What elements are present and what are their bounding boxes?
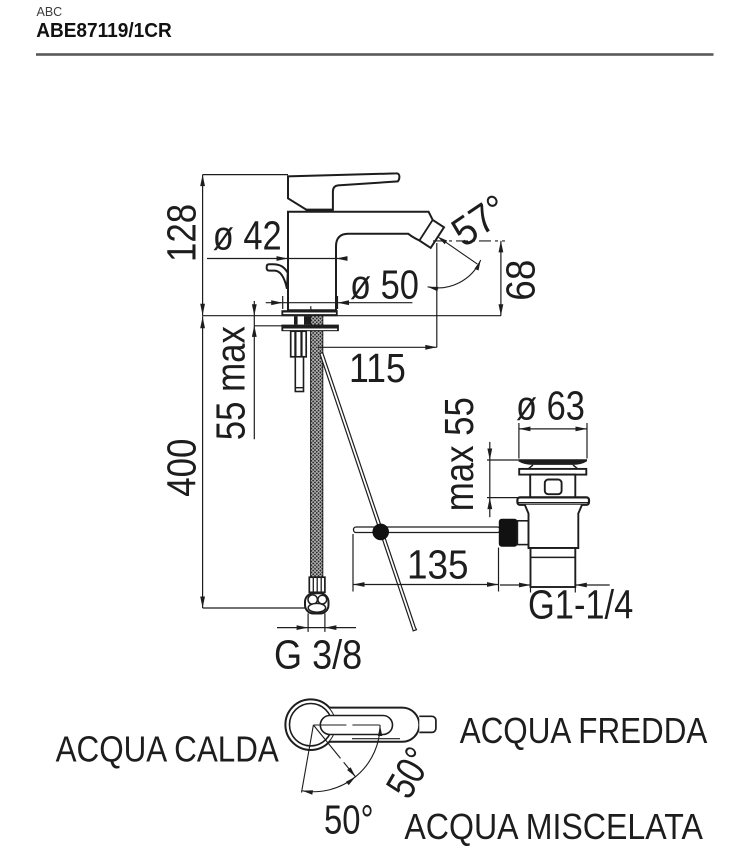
- svg-text:max 55: max 55: [438, 397, 483, 511]
- svg-text:ø 50: ø 50: [350, 263, 419, 308]
- svg-text:G 3/8: G 3/8: [274, 632, 362, 678]
- svg-text:ACQUA FREDDA: ACQUA FREDDA: [460, 711, 708, 752]
- svg-text:ACQUA MISCELATA: ACQUA MISCELATA: [404, 807, 703, 847]
- svg-text:128: 128: [160, 204, 205, 262]
- svg-text:400: 400: [160, 439, 205, 497]
- svg-text:G1-1/4: G1-1/4: [528, 583, 633, 628]
- svg-text:ACQUA CALDA: ACQUA CALDA: [56, 729, 279, 770]
- svg-text:115: 115: [349, 346, 406, 392]
- svg-text:68: 68: [499, 260, 544, 301]
- svg-text:55 max: 55 max: [209, 326, 254, 440]
- svg-text:50°: 50°: [324, 796, 374, 842]
- svg-text:ø 42: ø 42: [213, 214, 282, 259]
- svg-text:135: 135: [407, 543, 469, 588]
- svg-text:ABC: ABC: [37, 5, 63, 19]
- svg-text:ø 63: ø 63: [516, 384, 585, 429]
- svg-text:ABE87119/1CR: ABE87119/1CR: [36, 19, 172, 42]
